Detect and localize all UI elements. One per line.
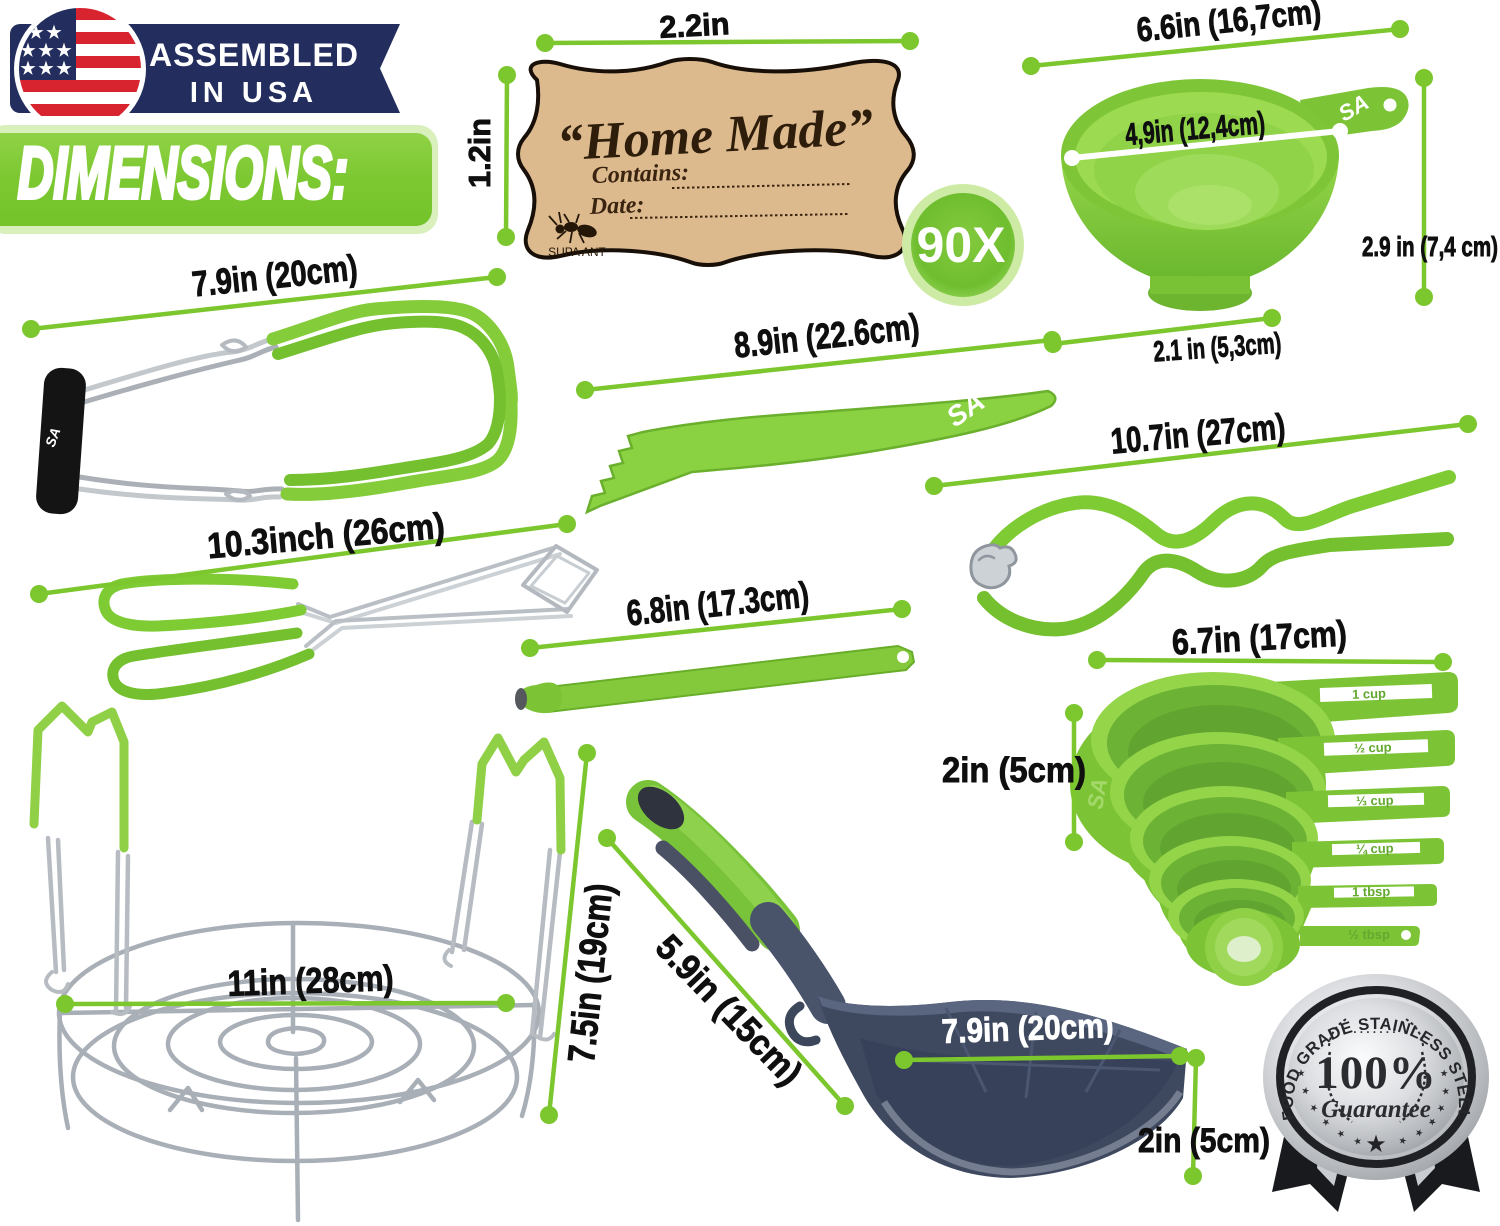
svg-text:2.1 in (5,3cm): 2.1 in (5,3cm) <box>1152 328 1282 369</box>
svg-text:★: ★ <box>38 41 54 60</box>
svg-text:11in (28cm): 11in (28cm) <box>227 957 394 1004</box>
svg-text:90X: 90X <box>917 217 1006 273</box>
svg-text:★: ★ <box>20 59 36 78</box>
svg-text:DIMENSIONS:: DIMENSIONS: <box>18 133 349 215</box>
svg-text:★: ★ <box>46 23 62 42</box>
svg-text:1 tbsp: 1 tbsp <box>1352 884 1391 900</box>
svg-text:2.9 in (7,4 cm): 2.9 in (7,4 cm) <box>1362 231 1498 262</box>
svg-text:★: ★ <box>56 41 72 60</box>
svg-text:Date:: Date: <box>588 192 645 220</box>
svg-text:2.2in: 2.2in <box>659 6 731 45</box>
svg-text:·······: ······· <box>1353 1025 1398 1039</box>
svg-text:⅓ cup: ⅓ cup <box>1356 793 1394 809</box>
svg-text:100%: 100% <box>1315 1047 1437 1099</box>
svg-text:¼ cup: ¼ cup <box>1356 841 1394 857</box>
svg-text:7.9in (20cm): 7.9in (20cm) <box>941 1007 1114 1051</box>
svg-text:10.7in (27cm): 10.7in (27cm) <box>1109 405 1287 461</box>
svg-text:★: ★ <box>1365 1131 1387 1158</box>
svg-text:SA: SA <box>1082 776 1112 810</box>
svg-text:1 cup: 1 cup <box>1352 686 1387 702</box>
svg-text:★: ★ <box>56 59 72 78</box>
svg-text:Guarantee: Guarantee <box>1321 1096 1431 1123</box>
svg-text:2in (5cm): 2in (5cm) <box>1138 1122 1270 1160</box>
svg-text:2in (5cm): 2in (5cm) <box>942 751 1086 790</box>
svg-text:6.6in (16,7cm): 6.6in (16,7cm) <box>1135 0 1323 50</box>
svg-text:6.7in (17cm): 6.7in (17cm) <box>1171 612 1348 662</box>
svg-text:SUPA ANT: SUPA ANT <box>548 245 606 259</box>
svg-text:1.2in: 1.2in <box>462 118 497 188</box>
svg-text:6.8in (17.3cm): 6.8in (17.3cm) <box>625 574 811 634</box>
svg-text:Contains:: Contains: <box>591 160 689 189</box>
svg-text:½ cup: ½ cup <box>1354 739 1392 755</box>
svg-text:IN USA: IN USA <box>190 77 318 109</box>
svg-text:ASSEMBLED: ASSEMBLED <box>149 37 359 73</box>
svg-text:½ tbsp: ½ tbsp <box>1348 927 1390 942</box>
svg-text:★: ★ <box>38 59 54 78</box>
